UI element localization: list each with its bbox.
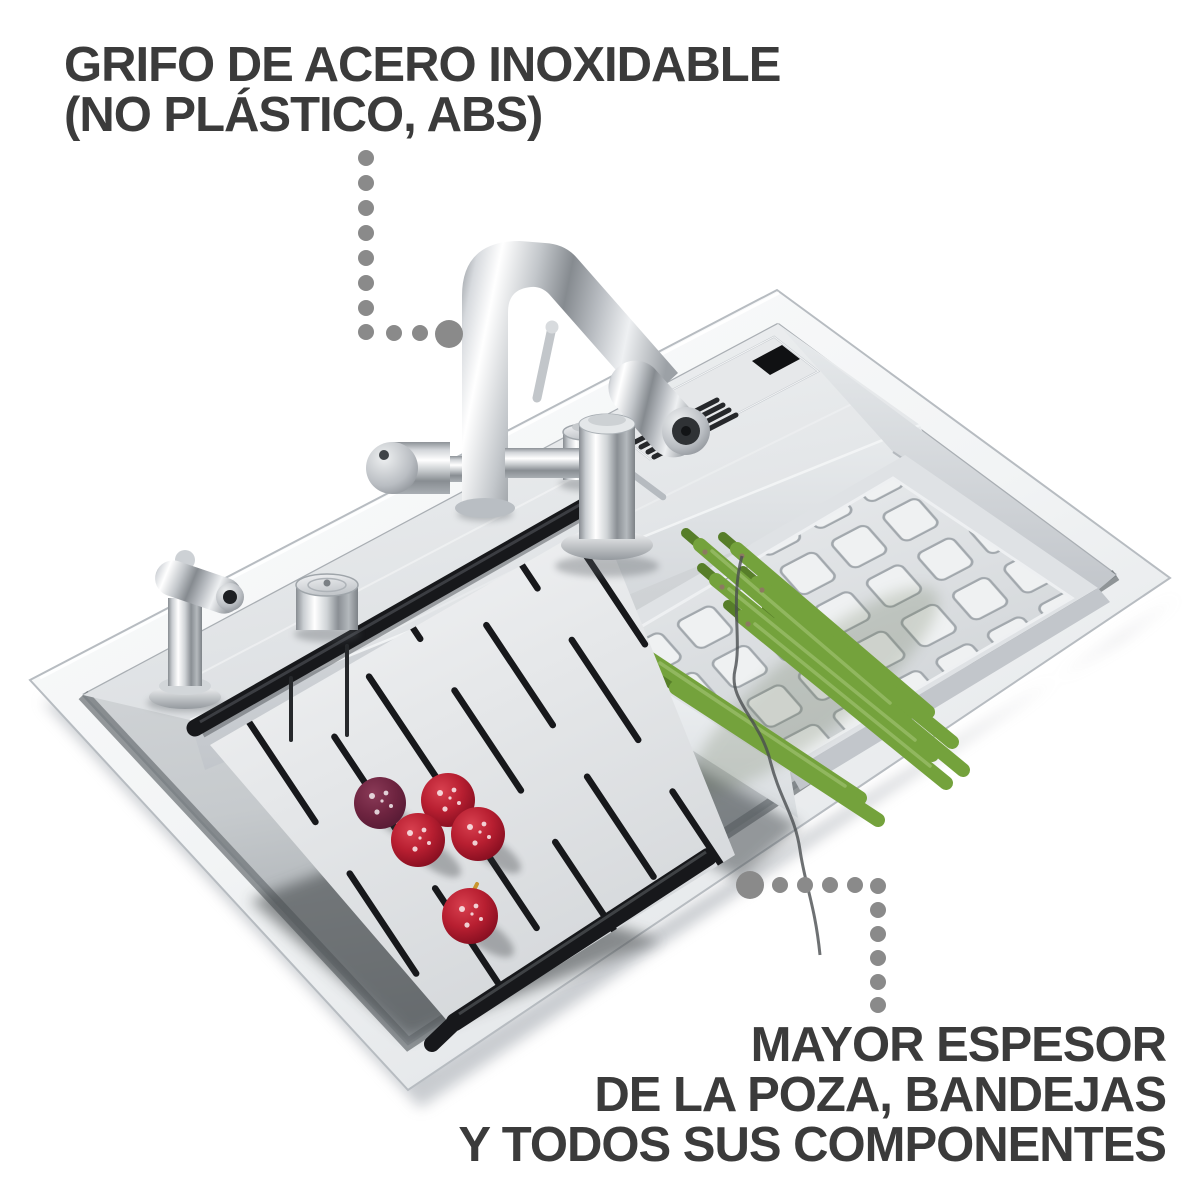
deck-knob: [296, 574, 358, 630]
annotation-thickness-text: MAYOR ESPESOR DE LA POZA, BANDEJAS Y TOD…: [458, 1020, 1166, 1170]
dotted-connector-bottom: [736, 871, 886, 1013]
annotation-thickness-line3: Y TODOS SUS COMPONENTES: [458, 1120, 1166, 1170]
pointer-dot-faucet: [435, 320, 463, 348]
annotation-faucet-text: GRIFO DE ACERO INOXIDABLE (NO PLÁSTICO, …: [64, 40, 780, 140]
dotted-connector-top: [358, 150, 463, 348]
annotation-thickness-line2: DE LA POZA, BANDEJAS: [458, 1070, 1166, 1120]
faucet-column: [579, 424, 635, 539]
annotation-faucet-line1: GRIFO DE ACERO INOXIDABLE: [64, 40, 780, 90]
annotation-faucet-line2: (NO PLÁSTICO, ABS): [64, 90, 780, 140]
annotation-thickness-line1: MAYOR ESPESOR: [458, 1020, 1166, 1070]
pointer-dot-basin: [736, 871, 764, 899]
